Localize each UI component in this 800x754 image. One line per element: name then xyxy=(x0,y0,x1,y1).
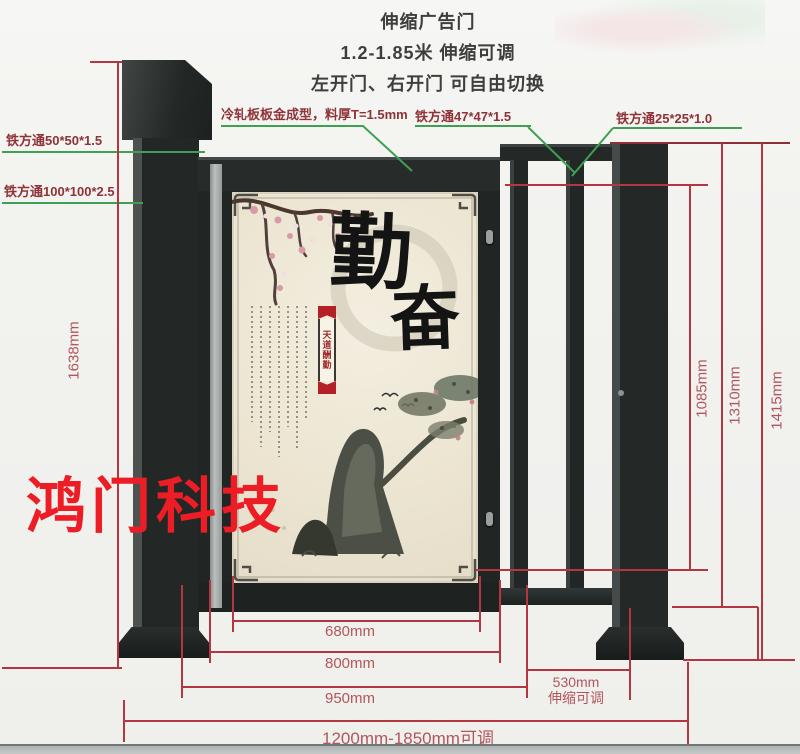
advertising-gate-diagram: 勤 奋 天道酬勤 xyxy=(0,0,800,754)
label-tube-25: 铁方通25*25*1.0 xyxy=(616,108,712,127)
leader-tube25 xyxy=(572,128,742,176)
dim-text-800: 800mm xyxy=(300,655,400,672)
dim-text-1085: 1085mm xyxy=(694,344,711,434)
leader-cold-plate xyxy=(221,126,412,171)
dimension-lines xyxy=(2,62,795,744)
dim-text-1415: 1415mm xyxy=(769,356,786,446)
dim-text-950: 950mm xyxy=(300,690,400,707)
dim-text-530-value: 530mm xyxy=(533,674,619,690)
leader-tube47 xyxy=(415,126,575,173)
company-watermark: 鸿门科技 xyxy=(26,458,286,545)
dim-text-530: 530mm 伸缩可调 xyxy=(533,674,619,706)
dim-text-680: 680mm xyxy=(300,623,400,640)
dim-text-530-note: 伸缩可调 xyxy=(533,690,619,706)
header-subtitle: 1.2-1.85米 伸缩可调 xyxy=(278,39,578,65)
label-tube-100: 铁方通100*100*2.5 xyxy=(4,181,115,200)
label-cold-rolled-plate: 冷轧板板金成型，料厚T=1.5mm xyxy=(221,104,408,123)
dim-text-1638: 1638mm xyxy=(66,306,83,396)
label-tube-47: 铁方通47*47*1.5 xyxy=(415,106,511,125)
label-tube-50: 铁方通50*50*1.5 xyxy=(6,130,102,149)
header-title: 伸缩广告门 xyxy=(278,8,578,34)
dim-text-1310: 1310mm xyxy=(727,351,744,441)
bottom-edge-strip xyxy=(0,744,800,754)
header-note: 左开门、右开门 可自由切换 xyxy=(278,70,578,96)
